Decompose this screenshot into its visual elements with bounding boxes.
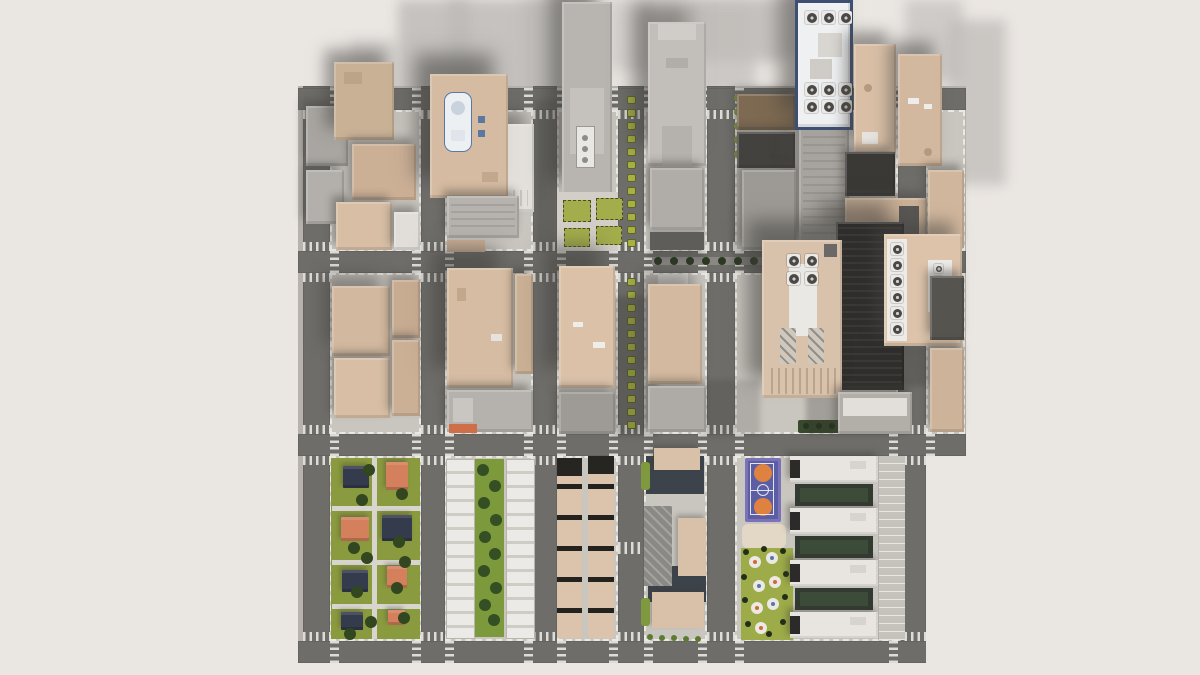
crosswalk xyxy=(421,632,445,641)
boulevard-median-planter xyxy=(627,278,636,286)
roof-vent xyxy=(924,148,932,156)
roof-detail xyxy=(563,200,591,222)
median-tree xyxy=(718,257,726,265)
crosswalk xyxy=(303,273,330,282)
apartment-roof-detail xyxy=(790,460,800,478)
crosswalk xyxy=(303,456,330,465)
crosswalk xyxy=(618,542,644,554)
rooftop-fan-unit xyxy=(839,83,852,96)
crosswalk xyxy=(735,641,744,663)
building xyxy=(394,212,420,250)
building xyxy=(336,202,392,250)
tree xyxy=(399,556,411,568)
tree xyxy=(398,612,410,624)
roof-detail xyxy=(593,342,605,348)
tree xyxy=(489,480,501,492)
parking-strip xyxy=(878,456,905,640)
roof-detail xyxy=(862,132,878,144)
crosswalk xyxy=(533,456,557,465)
picnic-table-dot xyxy=(755,606,759,610)
crosswalk xyxy=(533,273,557,282)
crosswalk xyxy=(303,242,330,251)
tree xyxy=(356,494,368,506)
roof-vent xyxy=(451,101,465,115)
crosswalk xyxy=(889,641,898,663)
park-bush xyxy=(742,597,748,603)
house xyxy=(341,517,369,541)
crosswalk xyxy=(303,425,330,434)
rowhouse-strip xyxy=(506,459,535,639)
park-bush xyxy=(766,631,772,637)
building xyxy=(648,284,702,384)
tree xyxy=(479,599,491,611)
rowhouse-strip xyxy=(588,458,614,638)
crosswalk xyxy=(303,632,330,641)
crosswalk xyxy=(533,632,557,641)
park-bush xyxy=(741,574,747,580)
rooftop-fan-unit xyxy=(822,100,835,113)
apartment-slab xyxy=(790,612,878,638)
roof-vent xyxy=(582,146,588,152)
crosswalk xyxy=(735,434,744,456)
fan-blade xyxy=(841,85,851,95)
boulevard-median-planter xyxy=(627,213,636,221)
crosswalk xyxy=(533,425,557,434)
building xyxy=(447,196,519,238)
park-bush xyxy=(745,621,751,627)
basketball-court xyxy=(745,458,781,522)
park-bush xyxy=(761,546,767,552)
building-shadow xyxy=(700,380,760,436)
apartment-slab xyxy=(790,560,878,586)
roof-detail xyxy=(491,334,502,341)
roof-louvres xyxy=(766,368,838,394)
crosswalk xyxy=(644,641,653,663)
crosswalk xyxy=(421,456,445,465)
boulevard-median-planter xyxy=(627,148,636,156)
crosswalk xyxy=(421,425,445,434)
park-bush xyxy=(782,594,788,600)
street-vertical xyxy=(707,86,735,663)
rooftop-fan-unit xyxy=(839,11,852,24)
building xyxy=(737,94,795,130)
rooftop-fan-unit xyxy=(805,83,818,96)
rooftop-fan-unit xyxy=(787,272,800,285)
picnic-table-dot xyxy=(753,560,757,564)
crosswalk xyxy=(889,434,898,456)
roof-vent xyxy=(582,135,588,141)
roof-vent xyxy=(864,84,872,92)
roof-detail xyxy=(666,58,688,68)
roof-detail xyxy=(658,24,696,40)
residential-path xyxy=(372,458,377,639)
boulevard-median-planter xyxy=(627,239,636,247)
roof-garden-planting xyxy=(800,488,868,502)
building xyxy=(515,274,533,374)
crosswalk xyxy=(412,88,421,110)
building xyxy=(559,392,615,434)
roof-detail xyxy=(451,130,465,141)
sand-lot xyxy=(742,524,786,548)
apartment-slab xyxy=(790,508,878,534)
fan-blade xyxy=(893,325,902,334)
building xyxy=(742,170,796,250)
apartment-roof-vent xyxy=(850,461,866,469)
building xyxy=(898,54,942,166)
boulevard-median-planter xyxy=(627,96,636,104)
street-tree xyxy=(671,635,677,641)
boulevard-median-planter xyxy=(627,187,636,195)
rooftop-fan-unit xyxy=(891,259,903,271)
fan-blade xyxy=(841,13,851,23)
tower-cast-shadow xyxy=(700,0,756,96)
crosswalk xyxy=(609,641,618,663)
park-bush xyxy=(780,619,786,625)
dark-roof-segment xyxy=(557,458,582,476)
tower-cast-shadow xyxy=(610,0,650,70)
penthouse-cap xyxy=(654,448,700,470)
building xyxy=(795,0,853,130)
crosswalk xyxy=(412,251,421,273)
crosswalk xyxy=(707,273,735,282)
roof-detail xyxy=(843,398,907,416)
building-shadow xyxy=(536,100,558,250)
fan-blade xyxy=(893,309,902,318)
crosswalk xyxy=(698,641,707,663)
fan-blade xyxy=(807,85,817,95)
roof-detail xyxy=(482,172,498,182)
roof-detail xyxy=(596,226,622,245)
apartment-roof-vent xyxy=(850,565,866,573)
angled-parking xyxy=(644,506,672,586)
park-bush xyxy=(743,549,749,555)
tree xyxy=(365,616,377,628)
building xyxy=(392,280,420,338)
roof-vent xyxy=(582,157,588,163)
building xyxy=(352,144,416,200)
building xyxy=(449,424,477,433)
fan-blade xyxy=(789,256,799,266)
crosswalk xyxy=(926,434,935,456)
building xyxy=(447,240,485,252)
street-tree xyxy=(659,635,665,641)
building xyxy=(334,62,394,140)
building xyxy=(845,152,895,196)
crosswalk xyxy=(524,641,533,663)
crosswalk xyxy=(421,242,445,251)
park-bush xyxy=(780,548,786,554)
tower-cast-shadow xyxy=(758,0,798,56)
building xyxy=(930,276,964,340)
building xyxy=(332,286,390,356)
fan-blade xyxy=(807,102,817,112)
building xyxy=(557,192,618,251)
crosswalk xyxy=(421,273,445,282)
rooftop-fan-unit xyxy=(822,11,835,24)
roof-detail xyxy=(924,104,932,109)
boulevard-median-planter xyxy=(627,174,636,182)
mid-rise-slab xyxy=(678,518,706,576)
house xyxy=(341,612,363,630)
tree xyxy=(478,565,490,577)
building xyxy=(650,168,704,230)
apartment-slab xyxy=(790,456,878,482)
crosswalk xyxy=(609,434,618,456)
crosswalk xyxy=(707,632,735,641)
picnic-table-dot xyxy=(757,584,761,588)
boulevard-median-planter xyxy=(627,200,636,208)
roof-louvres xyxy=(451,202,515,232)
picnic-table-dot xyxy=(773,580,777,584)
boulevard-median-planter xyxy=(627,135,636,143)
picnic-table-dot xyxy=(759,626,763,630)
crosswalk xyxy=(445,434,454,456)
crosswalk xyxy=(412,434,421,456)
crosswalk xyxy=(707,456,735,465)
tree xyxy=(393,536,405,548)
rooftop-fan-unit xyxy=(805,254,818,267)
street-horizontal xyxy=(298,434,966,456)
fan-blade xyxy=(789,274,799,284)
boulevard-median-planter xyxy=(627,109,636,117)
tree xyxy=(478,497,490,509)
fan-blade xyxy=(893,261,902,270)
apartment-roof-vent xyxy=(850,617,866,625)
roof-detail xyxy=(908,98,919,104)
apartment-roof-detail xyxy=(790,616,800,634)
roof-detail xyxy=(573,322,583,327)
apartment-roof-detail xyxy=(790,564,800,582)
rooftop-fan-unit xyxy=(822,83,835,96)
rooftop-fan-unit xyxy=(934,264,943,273)
building xyxy=(648,386,706,432)
street-planter xyxy=(641,598,650,626)
street-planter xyxy=(641,462,650,490)
crosswalk xyxy=(707,110,735,119)
dark-roof-segment xyxy=(588,456,614,474)
picnic-table-dot xyxy=(771,602,775,606)
tree xyxy=(351,586,363,598)
fan-blade xyxy=(824,13,834,23)
park-bush xyxy=(783,571,789,577)
apartment-roof-vent xyxy=(850,513,866,521)
rooftop-fan-unit xyxy=(891,243,903,255)
crosswalk xyxy=(707,242,735,251)
building xyxy=(562,2,612,200)
city-edge-cutout xyxy=(926,456,968,665)
crosswalk xyxy=(524,88,533,110)
tree xyxy=(344,628,356,640)
house xyxy=(386,462,408,490)
tree xyxy=(489,548,501,560)
rooftop-fan-unit xyxy=(891,307,903,319)
crosswalk xyxy=(557,641,566,663)
fan-blade xyxy=(807,256,817,266)
crosswalk xyxy=(524,251,533,273)
tree xyxy=(488,614,500,626)
roof-louvres xyxy=(808,328,824,364)
roof-detail xyxy=(564,228,590,247)
building xyxy=(838,392,912,434)
fan-blade xyxy=(807,13,817,23)
building xyxy=(334,358,390,418)
court-surface xyxy=(748,461,778,519)
tree xyxy=(363,464,375,476)
roof-detail xyxy=(818,33,842,57)
crosswalk xyxy=(445,641,454,663)
apartment-roof-detail xyxy=(790,512,800,530)
roof-detail xyxy=(453,398,473,422)
building xyxy=(762,240,842,398)
rooftop-fan-unit xyxy=(891,323,903,335)
roof-louvres xyxy=(780,328,796,364)
building xyxy=(392,340,420,416)
boulevard-median-planter xyxy=(627,161,636,169)
building xyxy=(930,348,964,432)
rooftop-fan-unit xyxy=(805,100,818,113)
tree xyxy=(348,542,360,554)
rooftop-fan-unit xyxy=(805,272,818,285)
building xyxy=(737,132,795,168)
fan-blade xyxy=(824,102,834,112)
crosswalk xyxy=(330,434,339,456)
rowhouse-strip xyxy=(446,459,475,639)
building xyxy=(650,232,704,250)
crosswalk xyxy=(644,434,653,456)
crosswalk xyxy=(557,434,566,456)
crosswalk xyxy=(524,434,533,456)
roof-detail xyxy=(662,126,692,166)
building xyxy=(430,74,508,198)
tree xyxy=(477,464,489,476)
fan-blade xyxy=(893,277,902,286)
fan-blade xyxy=(807,274,817,284)
rooftop-fan-unit xyxy=(839,100,852,113)
crosswalk xyxy=(412,641,421,663)
fan-blade xyxy=(841,102,851,112)
penthouse-cap xyxy=(652,592,704,628)
roof-garden-planting xyxy=(800,592,868,606)
fan-blade xyxy=(936,266,942,272)
roof-detail xyxy=(478,116,485,123)
street-tree xyxy=(695,636,701,642)
fan-blade xyxy=(824,85,834,95)
tree xyxy=(396,488,408,500)
tree xyxy=(479,531,491,543)
rooftop-fan-unit xyxy=(891,275,903,287)
crosswalk xyxy=(618,632,644,641)
boulevard-median-planter xyxy=(627,226,636,234)
street-tree xyxy=(647,634,653,640)
picnic-table-dot xyxy=(770,556,774,560)
street-tree xyxy=(683,636,689,642)
roof-detail xyxy=(457,288,466,301)
rooftop-fan-unit xyxy=(805,11,818,24)
roof-garden-planting xyxy=(800,540,868,554)
city-render-viewport xyxy=(0,0,1200,675)
roof-detail xyxy=(810,59,832,79)
building xyxy=(447,268,513,388)
building xyxy=(648,22,706,166)
roof-detail xyxy=(824,244,837,257)
tree xyxy=(391,582,403,594)
rooftop-fan-unit xyxy=(787,254,800,267)
tree xyxy=(361,552,373,564)
rooftop-fan-unit xyxy=(891,291,903,303)
tree xyxy=(490,582,502,594)
roof-detail xyxy=(344,72,362,84)
building xyxy=(559,266,615,388)
crosswalk xyxy=(330,641,339,663)
tree xyxy=(490,514,502,526)
boulevard-median-planter xyxy=(627,122,636,130)
rowhouse-strip xyxy=(557,458,582,638)
roof-detail xyxy=(596,198,623,220)
court-center-circle xyxy=(757,484,769,496)
roof-detail xyxy=(478,130,485,137)
fan-blade xyxy=(893,245,902,254)
fan-blade xyxy=(893,293,902,302)
crosswalk xyxy=(330,251,339,273)
building xyxy=(854,44,896,154)
